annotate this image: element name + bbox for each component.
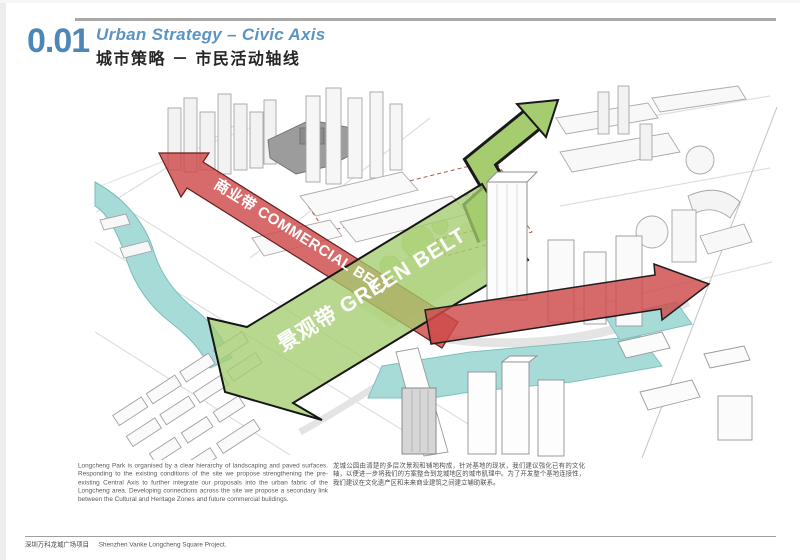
central-tower [487, 172, 537, 300]
page-edge-top [0, 0, 800, 3]
description-english: Longcheng Park is organised by a clear h… [78, 462, 328, 514]
project-name-english: Shenzhen Vanke Longcheng Square Project. [99, 541, 227, 548]
section-number: 0.01 [27, 22, 89, 61]
presentation-slide: 0.01 Urban Strategy – Civic Axis 城市策略 － … [0, 0, 800, 560]
project-name-chinese: 深圳万科龙城广场项目 [25, 541, 89, 548]
river [95, 182, 232, 368]
footer: 深圳万科龙城广场项目 Shenzhen Vanke Longcheng Squa… [25, 536, 776, 551]
page-title-chinese: 城市策略 － 市民活动轴线 [96, 45, 300, 69]
header-divider [75, 18, 776, 21]
civic-axis-diagram: 商业带 COMMERCIAL BELT 景观带 GREEN BELT [90, 82, 785, 460]
page-title-english: Urban Strategy – Civic Axis [96, 25, 326, 45]
page-edge [0, 0, 6, 560]
description-chinese: 龙城公园由清楚的多层次景观和铺地构成，针对基地的现状，我们建议强化已有的文化轴，… [333, 462, 585, 493]
